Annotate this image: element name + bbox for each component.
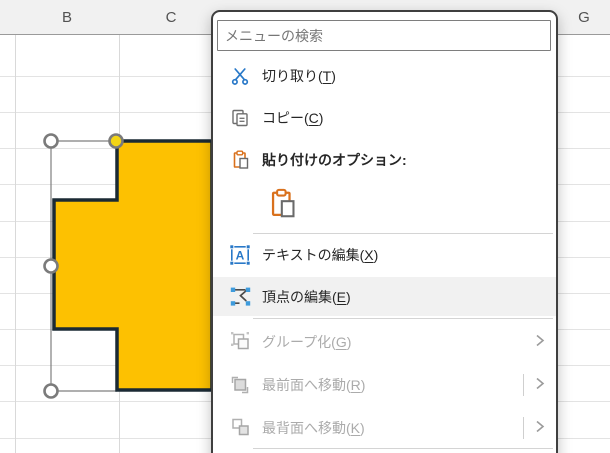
group-icon <box>228 331 252 353</box>
send-to-back-icon <box>228 417 252 439</box>
clipboard-icon <box>228 150 252 170</box>
split-divider <box>523 374 524 396</box>
menu-item-label: コピー(C) <box>262 108 323 128</box>
menu-separator <box>253 233 553 234</box>
menu-item-label: 頂点の編集(E) <box>262 287 351 307</box>
edit-points-icon <box>228 286 252 307</box>
paste-option-button[interactable] <box>265 189 299 223</box>
resize-handle-top-left[interactable] <box>45 135 58 148</box>
menu-item-send-to-back: 最背面へ移動(K) <box>213 408 556 448</box>
menu-item-copy[interactable]: コピー(C) <box>213 98 556 138</box>
menu-item-paste-options: 貼り付けのオプション: <box>213 140 556 180</box>
submenu-chevron-icon <box>535 420 545 437</box>
submenu-chevron-icon <box>535 334 545 351</box>
menu-item-label: 最背面へ移動(K) <box>262 418 365 438</box>
resize-handle-bottom-left[interactable] <box>45 385 58 398</box>
menu-separator <box>253 318 553 319</box>
copy-icon <box>228 108 252 128</box>
menu-item-label: グループ化(G) <box>262 332 351 352</box>
split-divider <box>523 417 524 439</box>
svg-text:A: A <box>236 249 245 263</box>
excel-canvas: B C G 切り取り(T) <box>0 0 610 453</box>
menu-item-edit-text[interactable]: A テキストの編集(X) <box>213 235 556 275</box>
menu-separator <box>253 448 553 449</box>
scissors-icon <box>228 66 252 86</box>
menu-item-group: グループ化(G) <box>213 322 556 362</box>
submenu-chevron-icon <box>535 377 545 394</box>
resize-handle-mid-left[interactable] <box>45 260 58 273</box>
menu-item-label: 最前面へ移動(R) <box>262 375 365 395</box>
paste-clipboard-icon <box>266 188 298 225</box>
context-menu: 切り取り(T) コピー(C) <box>211 10 558 453</box>
menu-item-edit-points[interactable]: 頂点の編集(E) <box>213 277 556 316</box>
menu-item-bring-to-front: 最前面へ移動(R) <box>213 365 556 405</box>
adjust-handle[interactable] <box>110 135 123 148</box>
freeform-shape[interactable] <box>54 141 212 390</box>
menu-item-label: 貼り付けのオプション: <box>262 150 407 170</box>
bring-to-front-icon <box>228 374 252 396</box>
menu-item-label: 切り取り(T) <box>262 66 336 86</box>
search-input[interactable] <box>217 20 551 51</box>
menu-item-cut[interactable]: 切り取り(T) <box>213 56 556 96</box>
edit-text-icon: A <box>228 244 252 266</box>
menu-item-label: テキストの編集(X) <box>262 245 378 265</box>
